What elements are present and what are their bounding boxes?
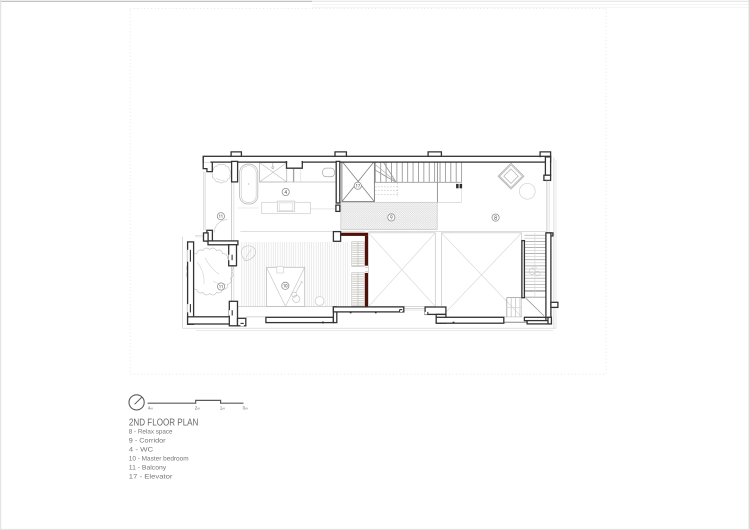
svg-text:0m: 0m <box>243 405 249 410</box>
svg-text:9 - Corridor: 9 - Corridor <box>129 437 167 444</box>
svg-text:10 - Master bedroom: 10 - Master bedroom <box>129 455 189 462</box>
svg-text:17 - Elevator: 17 - Elevator <box>129 473 174 480</box>
svg-text:1m: 1m <box>220 405 226 410</box>
svg-text:4 - WC: 4 - WC <box>129 446 154 453</box>
svg-text:2ND FLOOR PLAN: 2ND FLOOR PLAN <box>129 418 199 429</box>
svg-text:11 - Balcony: 11 - Balcony <box>129 464 167 471</box>
svg-text:2m: 2m <box>195 405 201 410</box>
svg-text:8 - Relax space: 8 - Relax space <box>129 428 173 435</box>
svg-text:4m: 4m <box>148 405 154 410</box>
